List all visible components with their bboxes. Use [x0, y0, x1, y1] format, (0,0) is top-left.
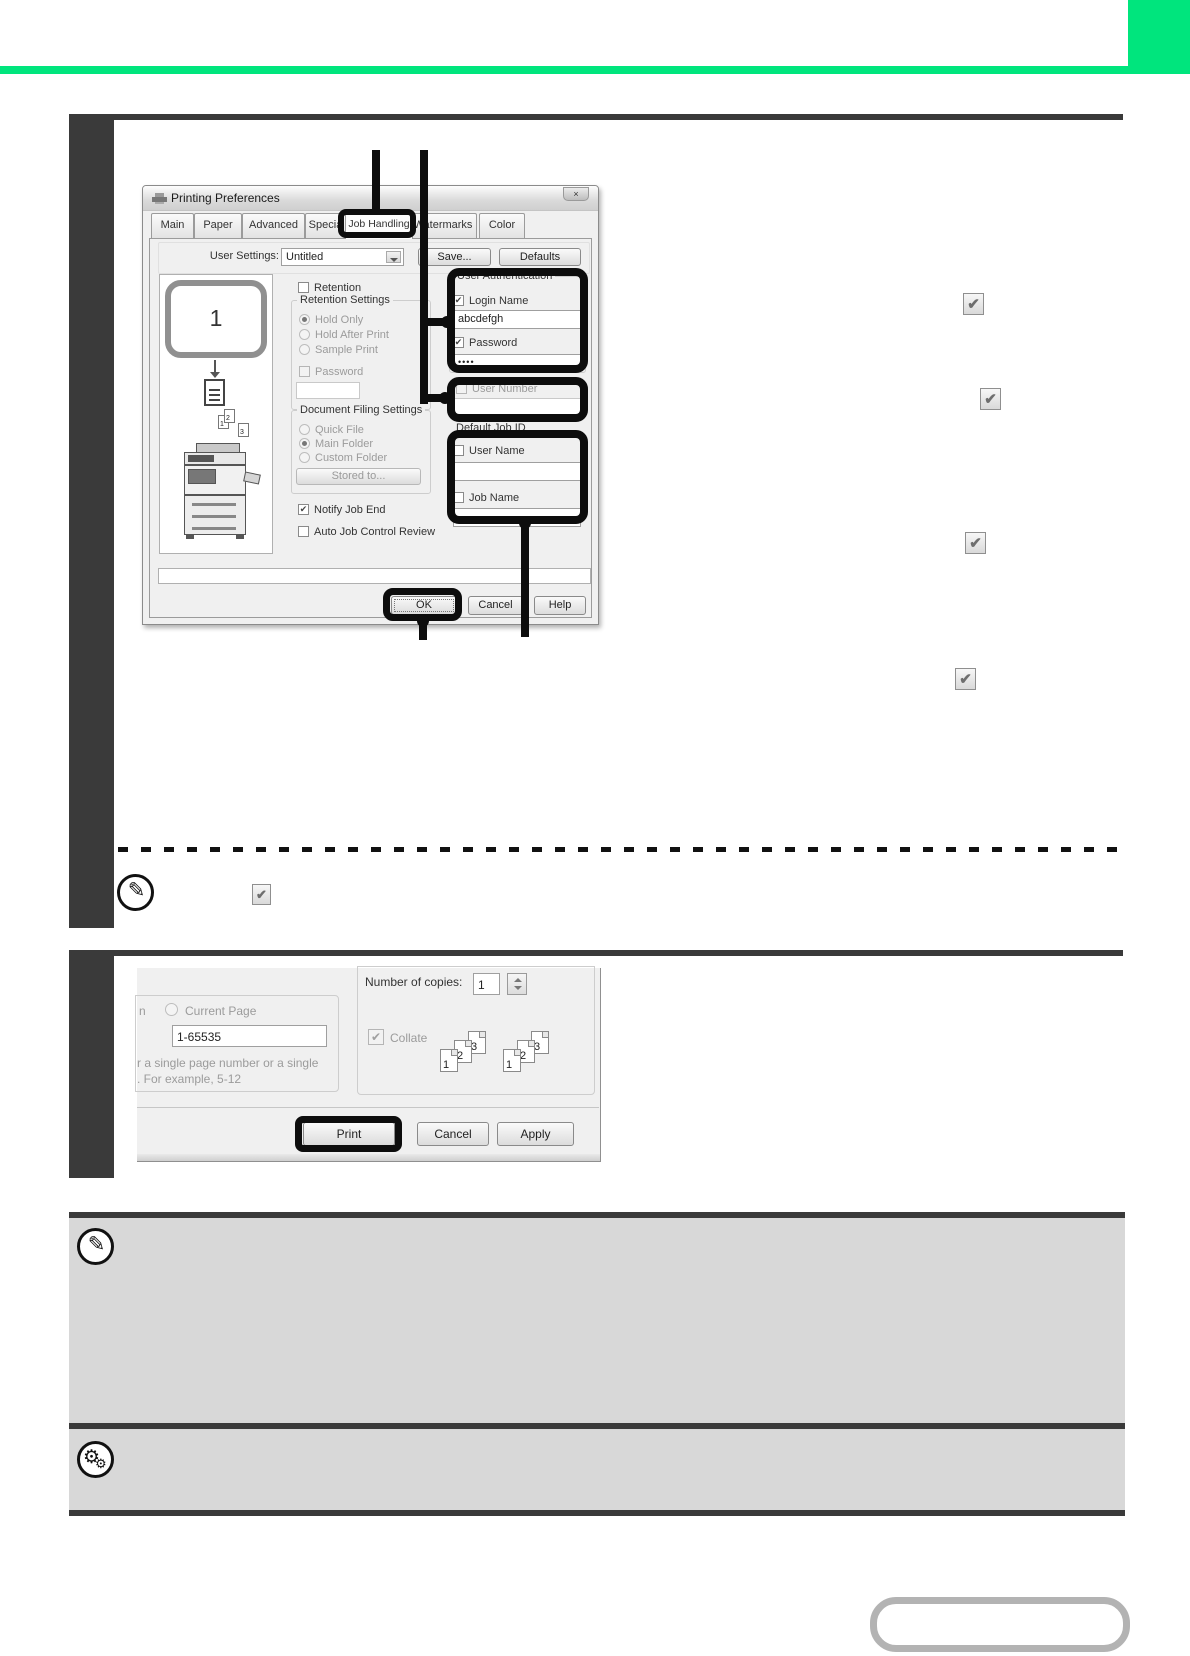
- footer-divider: [137, 1107, 599, 1108]
- callout-dot-ok: [417, 615, 429, 627]
- callout-line-job-id: [521, 523, 529, 637]
- system-settings-gear-icon: ⚙ ⚙: [77, 1441, 114, 1478]
- step1-top-rule: [69, 114, 1123, 120]
- header-accent-bar: [0, 66, 1128, 74]
- current-page-radio[interactable]: [165, 1003, 178, 1016]
- check-icon: ✔: [300, 504, 308, 514]
- step2-top-rule: [69, 950, 1123, 956]
- highlight-ring-job-handling-tab: [338, 209, 416, 238]
- callout-dot-usernumber: [439, 392, 451, 404]
- dropdown-arrow-icon[interactable]: [386, 251, 401, 263]
- cut-text: n: [139, 1004, 146, 1018]
- hold-after-print-radio[interactable]: [299, 329, 310, 340]
- highlight-ring-print: [295, 1116, 402, 1152]
- main-folder-radio[interactable]: [299, 438, 310, 449]
- document-icon: [204, 379, 225, 406]
- highlight-ring-user-authentication: [447, 268, 588, 373]
- retention-checkbox[interactable]: [298, 282, 309, 293]
- tab-paper[interactable]: Paper: [194, 213, 242, 238]
- page-range-hint-1: r a single page number or a single: [137, 1056, 318, 1070]
- settings-note-box: [69, 1429, 1125, 1510]
- checked-checkbox-image: ✔: [252, 884, 271, 905]
- checked-checkbox-image: ✔: [955, 668, 976, 690]
- user-settings-select[interactable]: Untitled: [281, 248, 404, 266]
- close-button[interactable]: ×: [563, 187, 589, 201]
- apply-button[interactable]: Apply: [497, 1122, 574, 1146]
- password-input[interactable]: [296, 382, 360, 399]
- step1-side-bar: [69, 114, 114, 928]
- page-range-hint-2: . For example, 5-12: [137, 1072, 241, 1086]
- save-button[interactable]: Save...: [418, 248, 491, 266]
- notify-job-end-checkbox[interactable]: ✔: [298, 504, 309, 515]
- auto-job-control-checkbox[interactable]: [298, 526, 309, 537]
- callout-line-tab: [372, 150, 380, 210]
- arrow-down-icon: [214, 360, 216, 372]
- collate-checkbox[interactable]: ✔: [368, 1029, 384, 1045]
- checked-checkbox-image: ✔: [963, 293, 984, 315]
- checked-checkbox-image: ✔: [965, 532, 986, 554]
- copies-label: Number of copies:: [365, 975, 462, 989]
- hold-only-radio[interactable]: [299, 314, 310, 325]
- document-filing-label: Document Filing Settings: [297, 404, 425, 416]
- close-icon: ×: [573, 189, 578, 199]
- copies-input[interactable]: 1: [473, 973, 500, 995]
- printer-icon: [152, 193, 167, 204]
- sample-print-radio[interactable]: [299, 344, 310, 355]
- print-preview-panel: 1 1 2 3: [159, 274, 273, 554]
- printer-illustration: [174, 443, 260, 547]
- password-checkbox[interactable]: [299, 366, 310, 377]
- copies-spinner[interactable]: [507, 973, 527, 995]
- spinner-up-icon[interactable]: [514, 978, 522, 982]
- page-range-input[interactable]: 1-65535: [172, 1025, 327, 1047]
- note-box-bottom-border: [69, 1510, 1125, 1516]
- stored-to-button[interactable]: Stored to...: [296, 468, 421, 485]
- quick-file-radio[interactable]: [299, 424, 310, 435]
- help-button[interactable]: Help: [534, 596, 586, 615]
- step2-side-bar: [69, 950, 114, 1178]
- dialog-title-bar: Printing Preferences ×: [143, 186, 598, 211]
- callout-dot-job-id: [519, 517, 531, 529]
- retention-settings-label: Retention Settings: [297, 294, 393, 306]
- note-pencil-icon: ✎: [117, 874, 154, 911]
- custom-folder-radio[interactable]: [299, 452, 310, 463]
- note-pencil-icon: ✎: [77, 1228, 114, 1265]
- defaults-button[interactable]: Defaults: [499, 248, 581, 266]
- checked-checkbox-image: ✔: [980, 388, 1001, 410]
- tab-advanced[interactable]: Advanced: [242, 213, 305, 238]
- header-accent-block: [1128, 0, 1190, 74]
- tab-color[interactable]: Color: [479, 213, 525, 238]
- tab-main[interactable]: Main: [151, 213, 194, 238]
- bottom-nav-button[interactable]: [870, 1597, 1130, 1652]
- note-box: [69, 1218, 1125, 1423]
- dialog-title: Printing Preferences: [171, 191, 280, 205]
- preview-page: 1: [165, 280, 267, 358]
- manual-page: Printing Preferences × Main Paper Advanc…: [0, 0, 1190, 1656]
- cancel-button[interactable]: Cancel: [468, 596, 523, 615]
- dashed-separator: [118, 847, 1117, 852]
- retention-label: Retention: [314, 282, 361, 294]
- highlight-ring-default-job-id: [447, 430, 588, 524]
- callout-dot-login: [441, 316, 453, 328]
- callout-line-auth: [420, 150, 428, 404]
- cancel-button-print[interactable]: Cancel: [417, 1122, 489, 1146]
- highlight-ring-user-number: [447, 377, 588, 422]
- spinner-down-icon[interactable]: [514, 986, 522, 990]
- user-settings-label: User Settings:: [203, 250, 279, 262]
- dialog-bottom-edge: [137, 1154, 600, 1162]
